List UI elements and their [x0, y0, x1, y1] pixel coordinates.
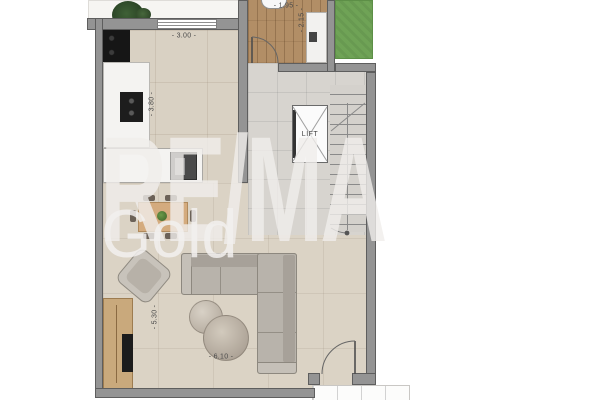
dining-chair: [143, 195, 155, 201]
entry-porch: [312, 385, 410, 400]
dining-chair: [165, 195, 177, 201]
wall: [335, 63, 376, 72]
wall: [327, 0, 335, 72]
staircase: [330, 85, 366, 232]
table-plant-icon: [157, 211, 167, 221]
cooktop-icon: [103, 28, 130, 62]
sofa-section-right: [257, 253, 297, 374]
floor-plan: LIFT - 3.00 - - 3.80 - - 1.95 - - 2.15 -…: [0, 0, 600, 400]
lift-label: LIFT: [301, 131, 319, 138]
dim-kitchen-depth: - 3.80 -: [149, 92, 156, 117]
peninsula-sink-icon: [170, 152, 197, 180]
dining-chair: [143, 233, 155, 239]
tv-icon: [122, 334, 133, 372]
dining-chair: [190, 210, 196, 222]
lift: LIFT: [292, 105, 328, 163]
garden-patch: [335, 0, 373, 59]
wall: [366, 72, 376, 385]
dining-chair: [130, 210, 136, 222]
wall: [308, 373, 320, 385]
wall: [238, 0, 248, 183]
dim-bath-depth: - 2.15 -: [299, 8, 306, 33]
dim-bath-width: - 1.95 -: [274, 3, 299, 10]
balcony-floor: [88, 0, 240, 20]
dim-living-width: - 6.10 -: [209, 354, 234, 361]
wall: [352, 373, 376, 385]
dining-chair: [165, 233, 177, 239]
wall: [95, 388, 315, 398]
dim-kitchen-width: - 3.00 -: [172, 33, 197, 40]
dim-living-depth: - 5.30 -: [152, 305, 159, 330]
faucet-icon: [309, 32, 317, 42]
kitchen-sink-icon: [120, 92, 143, 122]
kitchen-window: [157, 19, 217, 29]
wall: [95, 18, 103, 398]
